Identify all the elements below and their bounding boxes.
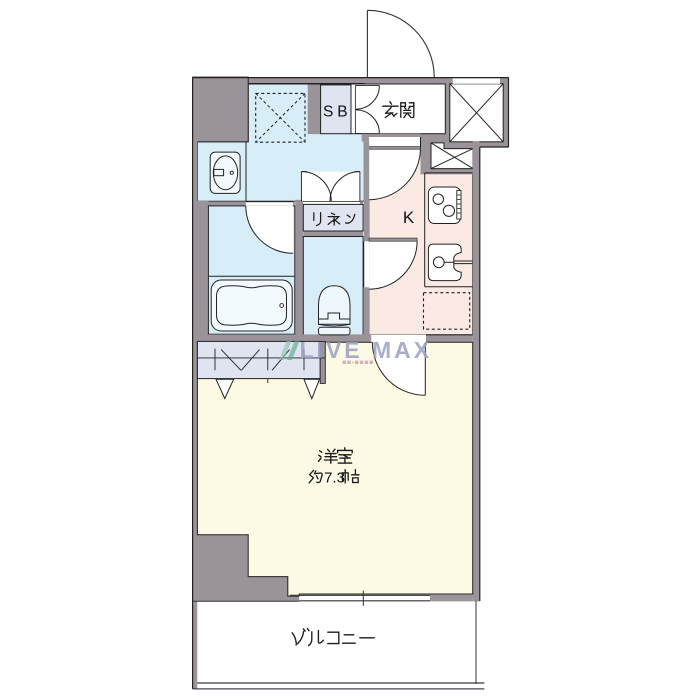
svg-text:LIVE MAX: LIVE MAX bbox=[300, 337, 433, 363]
svg-text:SB: SB bbox=[323, 104, 352, 121]
svg-text:K: K bbox=[403, 208, 415, 227]
